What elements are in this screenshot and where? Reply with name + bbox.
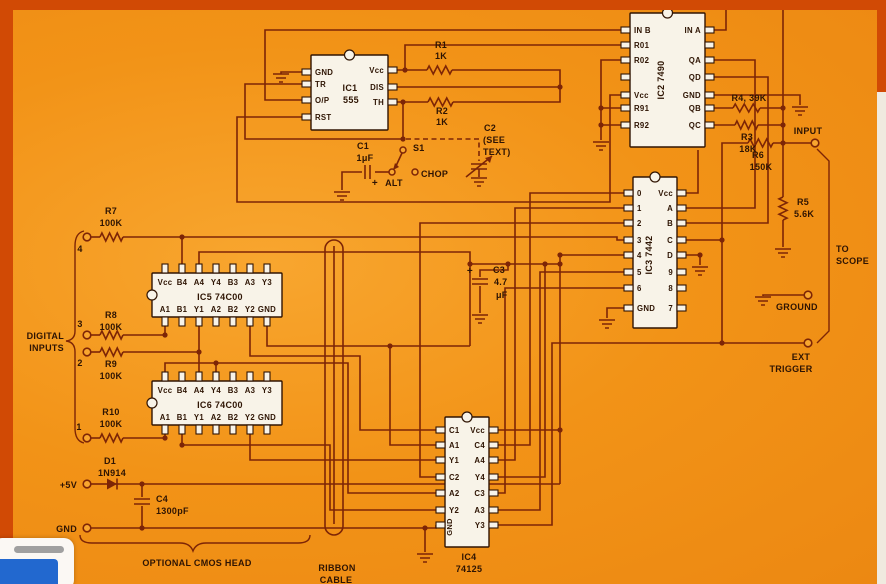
diode-d1 bbox=[107, 479, 117, 490]
ic6-74c00-pin-label: B1 bbox=[177, 413, 188, 422]
resistor-r1 bbox=[427, 66, 452, 74]
ic3-7442-pin bbox=[677, 305, 686, 311]
label-gnd: GND bbox=[445, 518, 454, 536]
ic2-7490-pin-label: Vcc bbox=[634, 91, 649, 100]
junction-dot bbox=[387, 343, 392, 348]
terminal bbox=[83, 331, 91, 339]
ic3-7442-pin bbox=[677, 269, 686, 275]
ic2-7490-pin-label: R92 bbox=[634, 121, 650, 130]
ic2-7490-pin-label: QB bbox=[689, 104, 701, 113]
terminal bbox=[83, 480, 91, 488]
terminal bbox=[804, 339, 812, 347]
ic4-74125-pin-label: Y4 bbox=[475, 473, 486, 482]
ic2-7490-pin-label: QA bbox=[689, 56, 701, 65]
ic6-74c00-pin bbox=[196, 425, 202, 434]
ground-symbol bbox=[755, 297, 771, 305]
ic2-7490-pin-label: GND bbox=[683, 91, 701, 100]
junction-dot bbox=[780, 140, 785, 145]
ic2-7490-pin bbox=[705, 105, 714, 111]
junction-dot bbox=[400, 99, 405, 104]
junction-dot bbox=[719, 340, 724, 345]
label-100k: 100K bbox=[100, 218, 123, 228]
label-100k: 100K bbox=[100, 371, 123, 381]
ic2-7490-pin-label: QC bbox=[689, 121, 701, 130]
wire bbox=[498, 343, 804, 525]
wire bbox=[498, 272, 624, 510]
ic4-74125-pin bbox=[436, 490, 445, 496]
ic6-74c00-pin bbox=[213, 372, 219, 381]
ic5-74c00: VccB4A4Y4B3A3Y3A1B1Y1A2B2Y2GNDIC5 74C00 bbox=[147, 264, 282, 326]
junction-dot bbox=[557, 252, 562, 257]
junction-dot bbox=[505, 261, 510, 266]
ic6-74c00-pin-label: Y1 bbox=[194, 413, 205, 422]
ic5-74c00-pin bbox=[247, 317, 253, 326]
ic4-74125-pin-label: Y2 bbox=[449, 506, 460, 515]
label-trigger: TRIGGER bbox=[769, 364, 812, 374]
ic3-7442-pin-label: Vcc bbox=[658, 189, 673, 198]
ic1-555-title: 555 bbox=[343, 95, 359, 105]
ic6-74c00-pin-label: A4 bbox=[194, 386, 205, 395]
ic5-74c00-pin bbox=[264, 264, 270, 273]
ground-symbol bbox=[273, 74, 289, 82]
label-3: 3 bbox=[77, 319, 82, 329]
resistor-r2 bbox=[428, 98, 453, 106]
wire bbox=[498, 193, 624, 445]
ic1-555-pin-label: TH bbox=[373, 98, 384, 107]
ic3-7442-pin bbox=[677, 205, 686, 211]
ic6-74c00-pin bbox=[179, 425, 185, 434]
ic6-74c00-pin bbox=[247, 372, 253, 381]
ic4-74125-pin-label: Y3 bbox=[475, 521, 486, 530]
terminal bbox=[804, 291, 812, 299]
ic2-7490-pin bbox=[621, 122, 630, 128]
ic4-74125-pin-label: Y1 bbox=[449, 456, 460, 465]
resistor-r4 bbox=[733, 104, 760, 112]
ic5-74c00-pin bbox=[264, 317, 270, 326]
ic2-7490-pin bbox=[621, 105, 630, 111]
wire bbox=[722, 143, 748, 343]
label-74125: 74125 bbox=[456, 564, 483, 574]
terminal bbox=[83, 233, 91, 241]
ic6-74c00-pin bbox=[247, 425, 253, 434]
junction-dot bbox=[422, 525, 427, 530]
ic2-7490-pin-label: R01 bbox=[634, 41, 650, 50]
digital-inputs-brace bbox=[66, 231, 84, 443]
ic5-74c00-pin bbox=[196, 317, 202, 326]
ic5-74c00-pin-label: B4 bbox=[177, 278, 188, 287]
ic1-555-notch bbox=[345, 50, 355, 60]
ic3-7442-pin bbox=[677, 237, 686, 243]
wire bbox=[763, 295, 804, 296]
resistor-r8 bbox=[100, 331, 123, 339]
junction-dot bbox=[780, 122, 785, 127]
label-inputs: INPUTS bbox=[29, 343, 64, 353]
label-r3: R3 bbox=[741, 132, 753, 142]
wire bbox=[686, 150, 698, 193]
junction-dot bbox=[400, 136, 405, 141]
ic1-555: GNDTRO/PRSTVccDISTHIC1555 bbox=[302, 50, 397, 130]
ic3-7442-pin-label: 1 bbox=[637, 204, 642, 213]
circuit-schematic: GNDTRO/PRSTVccDISTHIC1555IN BR01R02VccR9… bbox=[0, 0, 886, 584]
ic2-7490-pin-label: QD bbox=[689, 73, 701, 82]
label-c4: C4 bbox=[156, 494, 168, 504]
label-+: + bbox=[372, 178, 378, 189]
label-c2: C2 bbox=[484, 123, 496, 133]
label-ribbon: RIBBON bbox=[318, 563, 355, 573]
ic6-74c00-pin bbox=[213, 425, 219, 434]
ic6-74c00-pin-label: A1 bbox=[160, 413, 171, 422]
wire bbox=[123, 352, 199, 372]
label-r1: R1 bbox=[435, 40, 447, 50]
label-1n914: 1N914 bbox=[98, 468, 126, 478]
label-r9: R9 bbox=[105, 359, 117, 369]
ic2-7490-pin bbox=[705, 74, 714, 80]
ic4-74125-notch bbox=[462, 412, 472, 422]
ic3-7442-pin bbox=[677, 252, 686, 258]
terminal bbox=[83, 348, 91, 356]
junction-dot bbox=[162, 332, 167, 337]
ic3-7442-pin bbox=[624, 205, 633, 211]
label--f: μF bbox=[496, 290, 508, 300]
ic4-74125-pin bbox=[489, 427, 498, 433]
ic2-7490-pin bbox=[705, 42, 714, 48]
ic5-74c00-pin-label: Y3 bbox=[262, 278, 273, 287]
junction-dot bbox=[598, 105, 603, 110]
ic5-74c00-pin-label: A3 bbox=[245, 278, 256, 287]
wire bbox=[182, 237, 624, 240]
ic3-7442-pin-label: B bbox=[667, 219, 673, 228]
terminal bbox=[83, 434, 91, 442]
ic3-7442-pin-label: C bbox=[667, 236, 673, 245]
ic1-555-pin bbox=[302, 114, 311, 120]
page-border-top bbox=[0, 0, 886, 10]
resistor-r10 bbox=[100, 434, 123, 442]
wire bbox=[601, 60, 621, 140]
label-ground: GROUND bbox=[776, 302, 818, 312]
junction-dot bbox=[542, 261, 547, 266]
label-chop: CHOP bbox=[421, 169, 448, 179]
label-+: + bbox=[467, 266, 473, 277]
ic6-74c00-pin bbox=[230, 425, 236, 434]
ic4-74125-pin bbox=[436, 457, 445, 463]
ic3-7442-pin-label: A bbox=[667, 204, 673, 213]
ic1-555-pin-label: RST bbox=[315, 113, 332, 122]
ic2-7490: IN BR01R02VccR91R92IN AQAQDGNDQBQCIC2 74… bbox=[621, 8, 714, 147]
label-to: TO bbox=[836, 244, 849, 254]
overlay-icon-block bbox=[0, 559, 58, 584]
ic5-74c00-pin-label: A1 bbox=[160, 305, 171, 314]
ic3-7442-pin bbox=[624, 220, 633, 226]
label-c3: C3 bbox=[493, 265, 505, 275]
ic3-7442-pin-label: 5 bbox=[637, 268, 642, 277]
overlay-icon-bar bbox=[14, 546, 64, 553]
ic3-7442-pin bbox=[677, 190, 686, 196]
label-4: 4 bbox=[77, 244, 82, 254]
ic3-7442-pin-label: 3 bbox=[637, 236, 642, 245]
label-d1: D1 bbox=[104, 456, 116, 466]
capacitor-c1 bbox=[365, 165, 370, 179]
label-1k: 1K bbox=[436, 117, 448, 127]
ic3-7442-title: IC3 7442 bbox=[644, 236, 654, 275]
ic1-555-pin-label: GND bbox=[315, 68, 333, 77]
ic2-7490-pin bbox=[705, 57, 714, 63]
ground-symbol bbox=[472, 315, 488, 323]
ic6-74c00-pin bbox=[162, 372, 168, 381]
ic2-7490-pin bbox=[705, 92, 714, 98]
ic2-7490-pin bbox=[621, 74, 630, 80]
ic4-74125-pin-label: A1 bbox=[449, 441, 460, 450]
trimmer-arrowhead bbox=[485, 156, 492, 163]
capacitor-c3 bbox=[472, 279, 488, 284]
junction-dot bbox=[557, 261, 562, 266]
wire bbox=[123, 434, 165, 438]
ground-symbol bbox=[417, 554, 433, 562]
label-input: INPUT bbox=[794, 126, 823, 136]
ic4-74125-pin bbox=[489, 442, 498, 448]
ic3-7442-pin bbox=[624, 269, 633, 275]
ic4-74125-pin bbox=[436, 507, 445, 513]
label-r7: R7 bbox=[105, 206, 117, 216]
ic5-74c00-pin bbox=[230, 317, 236, 326]
ic3-7442-pin bbox=[624, 237, 633, 243]
ic3-7442-pin bbox=[624, 190, 633, 196]
label-4-7: 4.7 bbox=[494, 277, 507, 287]
ic6-74c00-pin bbox=[264, 425, 270, 434]
ic6-74c00-pin-label: GND bbox=[258, 413, 276, 422]
label-alt: ALT bbox=[385, 178, 403, 188]
resistor-r9 bbox=[100, 348, 123, 356]
ic1-555-pin bbox=[388, 99, 397, 105]
ic6-74c00-pin-label: A2 bbox=[211, 413, 222, 422]
page-border-right bbox=[877, 0, 886, 92]
ic3-7442-pin-label: 4 bbox=[637, 251, 642, 260]
ic3-7442-pin bbox=[677, 285, 686, 291]
label-text-: TEXT) bbox=[483, 147, 511, 157]
ic6-74c00-title: IC6 74C00 bbox=[197, 400, 243, 410]
ic5-74c00-title: IC5 74C00 bbox=[197, 292, 243, 302]
junction-dot bbox=[402, 67, 407, 72]
junction-dot bbox=[557, 84, 562, 89]
overlay-icon-card[interactable] bbox=[0, 538, 74, 584]
ic3-7442-pin-label: 7 bbox=[668, 304, 673, 313]
ic6-74c00-pin-label: Y2 bbox=[245, 413, 256, 422]
label-r5: R5 bbox=[797, 197, 809, 207]
ic4-74125-pin-label: C4 bbox=[474, 441, 485, 450]
ic2-7490-pin bbox=[621, 57, 630, 63]
ic5-74c00-pin bbox=[162, 317, 168, 326]
wire bbox=[123, 237, 182, 264]
ic5-74c00-pin bbox=[230, 264, 236, 273]
page-border-left bbox=[0, 0, 13, 584]
label-r2: R2 bbox=[436, 106, 448, 116]
wire bbox=[123, 326, 165, 335]
label--see: (SEE bbox=[483, 135, 505, 145]
ic5-74c00-pin-label: Vcc bbox=[158, 278, 173, 287]
ic6-74c00-pin-label: B3 bbox=[228, 386, 239, 395]
label-2: 2 bbox=[77, 358, 82, 368]
label-ic4: IC4 bbox=[462, 552, 477, 562]
resistor-r5 bbox=[779, 197, 787, 220]
ic5-74c00-pin-label: Y2 bbox=[245, 305, 256, 314]
ic3-7442-pin bbox=[624, 305, 633, 311]
ic5-74c00-pin-label: A2 bbox=[211, 305, 222, 314]
label-optional-cmos-head: OPTIONAL CMOS HEAD bbox=[142, 558, 251, 568]
ic3-7442: 0123456GNDVccABCD987IC3 7442 bbox=[624, 172, 686, 328]
ic6-74c00-pin bbox=[179, 372, 185, 381]
ic5-74c00-pin-label: Y4 bbox=[211, 278, 222, 287]
label-c1: C1 bbox=[357, 141, 369, 151]
ic2-7490-pin bbox=[621, 42, 630, 48]
ic5-74c00-notch bbox=[147, 290, 157, 300]
ground-symbol bbox=[593, 142, 609, 150]
ic4-74125-pin bbox=[489, 507, 498, 513]
junction-dot bbox=[719, 237, 724, 242]
ic1-555-pin-label: TR bbox=[315, 80, 326, 89]
switch-arm-s1 bbox=[396, 153, 402, 166]
ic5-74c00-pin-label: B1 bbox=[177, 305, 188, 314]
terminal bbox=[83, 524, 91, 532]
ic3-7442-pin-label: 0 bbox=[637, 189, 642, 198]
ic2-7490-pin bbox=[705, 122, 714, 128]
ground-symbol bbox=[775, 249, 791, 257]
label-cable: CABLE bbox=[320, 575, 353, 584]
switch-contact-chop bbox=[412, 169, 418, 175]
label-r6: R6 bbox=[752, 150, 764, 160]
ic1-555-title: IC1 bbox=[343, 83, 358, 93]
to-scope-bracket bbox=[817, 149, 829, 343]
label-+5v: +5V bbox=[60, 480, 77, 490]
wire bbox=[498, 288, 624, 493]
ic3-7442-notch bbox=[650, 172, 660, 182]
ic4-74125-pin bbox=[436, 427, 445, 433]
terminal bbox=[811, 139, 819, 147]
ground-symbol bbox=[471, 178, 487, 186]
ic3-7442-pin bbox=[677, 220, 686, 226]
ic3-7442-pin-label: D bbox=[667, 251, 673, 260]
ic1-555-pin bbox=[302, 69, 311, 75]
page-edge-strip bbox=[877, 92, 886, 584]
ic4-74125-pin-label: C3 bbox=[474, 489, 485, 498]
ic5-74c00-pin-label: B3 bbox=[228, 278, 239, 287]
ic2-7490-pin-label: IN B bbox=[634, 26, 651, 35]
ic6-74c00-pin-label: B2 bbox=[228, 413, 239, 422]
label-100k: 100K bbox=[100, 419, 123, 429]
junction-dot bbox=[780, 105, 785, 110]
ic3-7442-pin-label: 9 bbox=[668, 268, 673, 277]
label-r10: R10 bbox=[102, 407, 119, 417]
ic2-7490-title: IC2 7490 bbox=[656, 61, 666, 100]
ic5-74c00-pin-label: GND bbox=[258, 305, 276, 314]
ic5-74c00-pin bbox=[162, 264, 168, 273]
junction-dot bbox=[179, 442, 184, 447]
ic4-74125-pin bbox=[436, 522, 445, 528]
wire bbox=[607, 308, 624, 318]
switch-pivot bbox=[400, 147, 406, 153]
ic1-555-pin-label: DIS bbox=[370, 83, 384, 92]
ic6-74c00-pin-label: Y4 bbox=[211, 386, 222, 395]
junction-dot bbox=[557, 427, 562, 432]
junction-dot bbox=[139, 525, 144, 530]
label-ext: EXT bbox=[792, 352, 811, 362]
ic6-74c00: VccB4A4Y4B3A3Y3A1B1Y1A2B2Y2GNDIC6 74C00 bbox=[147, 372, 282, 434]
ic3-7442-pin bbox=[624, 252, 633, 258]
ic1-555-pin-label: O/P bbox=[315, 96, 329, 105]
junction-dot bbox=[179, 234, 184, 239]
wire bbox=[237, 95, 621, 202]
ic1-555-pin bbox=[302, 81, 311, 87]
ic1-555-pin bbox=[388, 84, 397, 90]
ic6-74c00-pin-label: B4 bbox=[177, 386, 188, 395]
label-r8: R8 bbox=[105, 310, 117, 320]
label-gnd: GND bbox=[56, 524, 77, 534]
cmos-head-brace bbox=[80, 535, 310, 551]
label-150k: 150K bbox=[750, 162, 773, 172]
ground-symbol bbox=[599, 320, 615, 328]
ic4-74125-pin bbox=[436, 442, 445, 448]
ic4-74125-pin-label: C2 bbox=[449, 473, 460, 482]
label-r4-39k: R4, 39K bbox=[731, 93, 766, 103]
ic1-555-pin bbox=[302, 97, 311, 103]
ic4-74125-pin-label: A4 bbox=[474, 456, 485, 465]
junction-dot bbox=[196, 349, 201, 354]
ic4-74125-pin-label: A2 bbox=[449, 489, 460, 498]
ic3-7442-pin-label: 8 bbox=[668, 284, 673, 293]
ic2-7490-pin-label: IN A bbox=[684, 26, 701, 35]
ic4-74125-pin-label: A3 bbox=[474, 506, 485, 515]
ic5-74c00-pin bbox=[179, 264, 185, 273]
label-5-6k: 5.6K bbox=[794, 209, 814, 219]
ic2-7490-pin-label: R02 bbox=[634, 56, 650, 65]
ic6-74c00-pin-label: Y3 bbox=[262, 386, 273, 395]
ic5-74c00-pin-label: Y1 bbox=[194, 305, 205, 314]
schematic-page: GNDTRO/PRSTVccDISTHIC1555IN BR01R02VccR9… bbox=[0, 0, 886, 584]
label-1300pf: 1300pF bbox=[156, 506, 189, 516]
wire bbox=[498, 208, 624, 460]
resistor-r7 bbox=[100, 233, 123, 241]
junction-dot bbox=[213, 360, 218, 365]
capacitor-c4 bbox=[134, 499, 150, 504]
ic4-74125-pin bbox=[489, 457, 498, 463]
ic6-74c00-pin-label: Vcc bbox=[158, 386, 173, 395]
switch-contact-alt bbox=[389, 169, 395, 175]
ground-symbol bbox=[692, 267, 708, 275]
ground-symbol bbox=[334, 192, 350, 200]
label-1k: 1K bbox=[435, 51, 447, 61]
label-s1: S1 bbox=[413, 143, 425, 153]
ic5-74c00-pin bbox=[213, 264, 219, 273]
ic5-74c00-pin bbox=[196, 264, 202, 273]
label-scope: SCOPE bbox=[836, 256, 869, 266]
junction-dot bbox=[598, 122, 603, 127]
junction-dot bbox=[162, 435, 167, 440]
ic5-74c00-pin-label: B2 bbox=[228, 305, 239, 314]
label-digital: DIGITAL bbox=[27, 331, 65, 341]
ic4-74125-pin-label: C1 bbox=[449, 426, 460, 435]
label-100k: 100K bbox=[100, 322, 123, 332]
ic5-74c00-pin-label: A4 bbox=[194, 278, 205, 287]
ground-symbol bbox=[792, 107, 808, 115]
ic6-74c00-pin bbox=[230, 372, 236, 381]
ic4-74125-pin-label: Vcc bbox=[470, 426, 485, 435]
ic5-74c00-pin bbox=[179, 317, 185, 326]
ic6-74c00-pin bbox=[196, 372, 202, 381]
junction-dot bbox=[697, 252, 702, 257]
ic6-74c00-pin bbox=[264, 372, 270, 381]
ic3-7442-pin-label: GND bbox=[637, 304, 655, 313]
wire bbox=[452, 70, 560, 102]
ic2-7490-pin bbox=[621, 27, 630, 33]
ic5-74c00-pin bbox=[247, 264, 253, 273]
